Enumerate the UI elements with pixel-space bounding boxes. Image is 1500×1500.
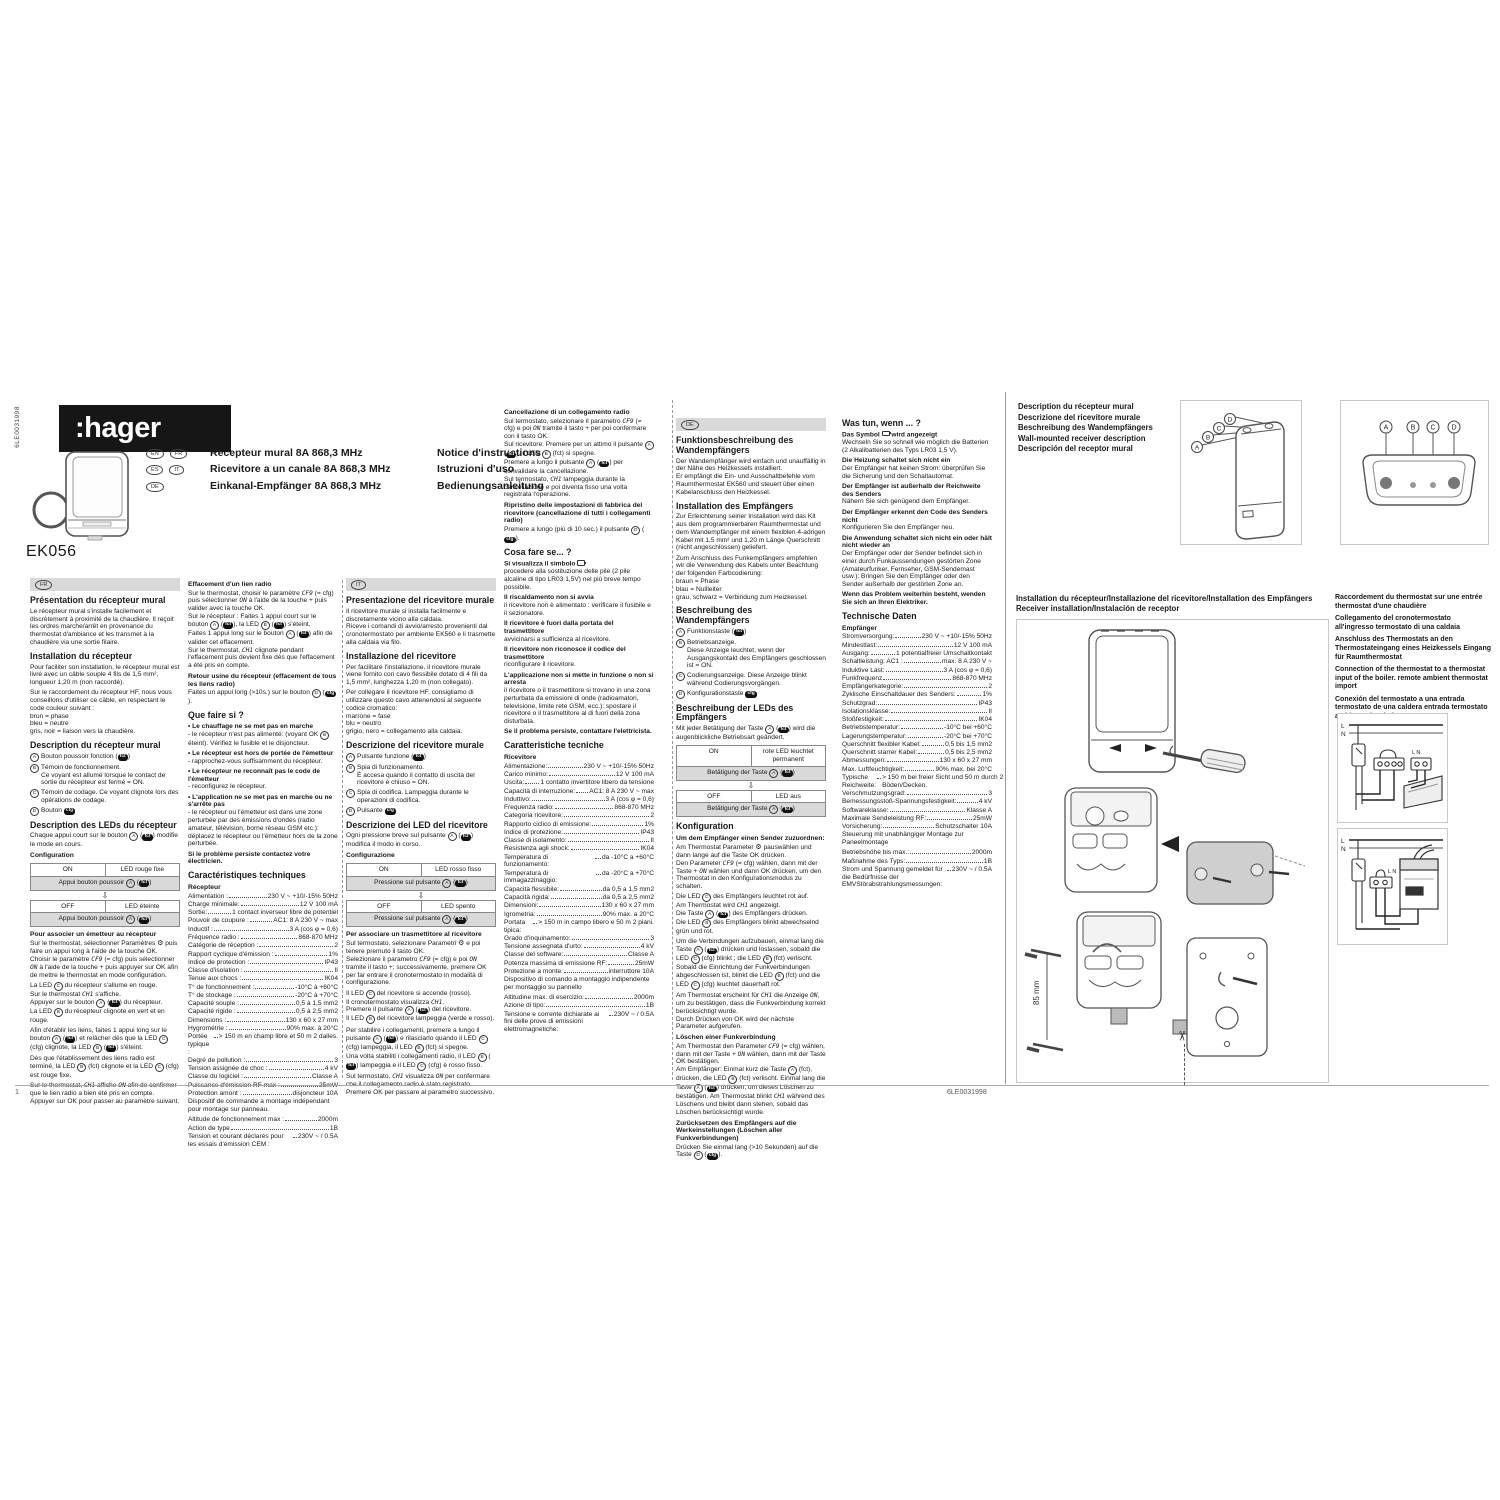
spec-leader <box>904 662 941 663</box>
callout-A-inline: A <box>96 999 105 1008</box>
spec-label: Capacité rigide : <box>188 1008 236 1016</box>
fct-badge: fct <box>734 629 744 636</box>
spec-value: 2 <box>334 942 338 950</box>
spec-leader <box>922 745 944 746</box>
spec-label: Protezione a monte: <box>504 968 563 976</box>
fct-badge: fct <box>413 754 423 761</box>
table-cell-led: LED spento <box>421 901 496 913</box>
callout-B-inline: B <box>93 1044 102 1053</box>
spec-label: Resistenza agli shock: <box>504 845 570 853</box>
note-paragraph: Se il problema persiste, contattare l'el… <box>504 728 654 736</box>
spec-label: Rapport cyclique d'émission : <box>188 951 274 959</box>
spec-leader <box>555 808 614 809</box>
callout-B-inline: B <box>415 1044 424 1053</box>
spec-value: IP43 <box>324 959 338 967</box>
spec-value: 1 contact inverseur libre de potentiel <box>232 909 338 917</box>
language-badge-bar: IT <box>346 578 496 591</box>
spec-value: -20°C à +70°C <box>295 992 338 1000</box>
spec-leader <box>214 930 289 931</box>
spec-value: 1B <box>984 858 992 866</box>
paragraph: Chaque appui court sur le bouton A (fct)… <box>30 832 180 849</box>
spec-label: Isolationsklasse: <box>842 708 890 716</box>
spec-leader <box>285 1120 317 1121</box>
connection-title: Raccordement du thermostat sur une entré… <box>1335 594 1491 612</box>
spec-row: Schaltleistung: AC1 :max. 8 A 230 V ~ <box>842 658 992 666</box>
spec-label: Maßnahme des Typs: <box>842 858 905 866</box>
spec-value: IP43 <box>978 700 992 708</box>
spec-row: Inductif :3 A (cos φ = 0,6) <box>188 926 338 934</box>
faq-question: • L'application ne se met pas en marche … <box>188 794 338 810</box>
line-label: L <box>1341 723 1345 730</box>
spec-leader <box>609 1015 613 1016</box>
spec-leader <box>878 646 953 647</box>
language-badge-it: IT <box>351 580 366 590</box>
language-badge-en: EN <box>146 449 164 459</box>
spec-row: Softwareklasse:Klasse A <box>842 807 992 815</box>
paragraph: Sul termostato, selezionare Parametri ⚙ … <box>346 940 496 987</box>
subsection-heading: Cancellazione di un collegamento radio <box>504 409 654 417</box>
callout-D-inline: D <box>312 689 321 698</box>
spec-leader <box>564 955 627 956</box>
spec-value: 4 kV <box>979 798 992 806</box>
spec-label: Funkfrequenz <box>842 675 882 683</box>
spec-value: -10°C bei +60°C <box>944 724 992 732</box>
faq-item: Die Anwendung schaltet sich nicht ein od… <box>842 535 992 589</box>
spec-label: Indice de protection : <box>188 959 249 967</box>
callout-item-text: Bouton poussoir fonction (fct) <box>41 753 180 762</box>
callout-A-inline: A <box>769 805 778 814</box>
wiring-diagram-boiler: L N L N <box>1338 829 1447 944</box>
spec-row: Stromversorgung:230 V ~ +10/-15% 50Hz <box>842 633 992 641</box>
terminal-label: L N <box>1412 750 1420 756</box>
language-badge-bar: DE <box>676 418 826 431</box>
spec-row: Indice de protection :IP43 <box>188 959 338 967</box>
language-badge-row: ESIT <box>146 462 187 478</box>
language-badge-fr: FR <box>35 580 52 590</box>
callout-B-inline: B <box>763 955 772 964</box>
spec-label: Tensione assegnata d'urto: <box>504 943 583 951</box>
subsection-heading: Um dem Empfänger einen Sender zuzuordnen… <box>676 835 826 843</box>
callout-item: ABouton poussoir fonction (fct) <box>30 753 180 762</box>
spec-leader <box>901 728 943 729</box>
callout-A-inline: A <box>676 628 685 637</box>
spec-label: Schutzgrad: <box>842 700 877 708</box>
spec-leader <box>246 1061 333 1062</box>
paragraph: Per facilitare l'installazione, il ricev… <box>346 664 496 687</box>
paragraph: Per collegare il ricevitore HF, consigli… <box>346 689 496 736</box>
paragraph: Dispositif de commande a montage indépen… <box>188 1098 338 1114</box>
table-cell-led: LED rouge fixe <box>105 864 180 876</box>
table-action-row: Appui bouton poussoir A (fct) <box>30 913 180 927</box>
table-cell-led: LED aus <box>751 791 826 803</box>
callout-item-text: Témoin de codage. Ce voyant clignote lor… <box>41 789 180 805</box>
callout-A-inline: A <box>586 459 595 468</box>
spec-value: 230 V ~ +10/-15% 50Hz <box>268 893 338 901</box>
spec-leader <box>910 853 971 854</box>
spec-label: Capacità rigida: <box>504 894 550 902</box>
spec-row: Induttivo:3 A (cos φ = 0,6) <box>504 796 654 804</box>
fct-badge: fct <box>782 807 792 814</box>
spec-value: > 150 m in campo libero e 50 m 2 piani. <box>538 919 654 927</box>
paragraph: Dispositivo di comando a montaggio indip… <box>504 976 654 992</box>
cfg-badge: cfg <box>707 1153 719 1160</box>
fct-badge: fct <box>274 622 284 629</box>
spec-row: Funkfrequenz868-870 MHz <box>842 675 992 683</box>
callout-B-inline: B <box>77 1063 86 1072</box>
callout-item-text: Témoin de fonctionnement.Ce voyant est a… <box>41 764 180 787</box>
spec-leader <box>240 1004 295 1005</box>
lcd-display-text: ON <box>469 956 477 963</box>
spec-label: Tensione e corrente dichiarate ai fini d… <box>504 1011 608 1034</box>
callout-C-inline: C <box>155 1063 164 1072</box>
spec-label: Grado d'inquinamento: <box>504 935 571 943</box>
spec-value: 2000m <box>318 1116 338 1124</box>
spec-row: Ausgang:1 potentialfreier Umschaltkontak… <box>842 650 992 658</box>
spec-row: Protection amont :disjoncteur 10A <box>188 1090 338 1098</box>
spec-row: Max. Luftfeuchtigkeit:90% max. bei 20°C <box>842 766 992 774</box>
spec-value: 868-870 MHz <box>952 675 992 683</box>
section-heading: Cosa fare se... ? <box>504 548 654 558</box>
callout-B-inline: B <box>30 764 39 773</box>
spec-row: Classe du logiciel :Classe A <box>188 1073 338 1081</box>
lcd-display-text: CF9 <box>302 590 313 597</box>
language-badge-de: DE <box>146 482 164 492</box>
front-view-box: A B C D <box>1180 400 1302 545</box>
lcd-display-text: CH1 <box>761 992 772 999</box>
spec-label: Bemessungsstoß-Spannungsfestigkeit: <box>842 798 956 806</box>
callout-B-inline: B <box>478 1053 487 1062</box>
lcd-display-text: ON <box>436 1073 444 1080</box>
spec-row: Alimentation :230 V ~ +10/-15% 50Hz <box>188 893 338 901</box>
spec-row: Maßnahme des Typs:1B <box>842 858 992 866</box>
led-state-table: ONLED rouge fixeAppui bouton poussoir A … <box>30 863 180 928</box>
faq-question: • Le récepteur ne reconnaît pas le code … <box>188 768 338 784</box>
spec-leader <box>907 794 988 795</box>
fct-badge: fct <box>142 834 152 841</box>
spec-value: Schutzschalter 10A <box>935 823 992 831</box>
connection-title: Connection of the thermostat to a thermo… <box>1335 666 1491 692</box>
spec-row: Altitudine max. di esercizio:2000m <box>504 994 654 1002</box>
spec-label: Catégorie de réception : <box>188 942 258 950</box>
callout-D-inline: D <box>631 526 640 535</box>
faq-answer: Wechseln Sie so schnell wie möglich die … <box>842 439 992 455</box>
language-badge-bar: FR <box>30 578 180 591</box>
description-title: Beschreibung des Wandempfängers <box>1018 423 1188 434</box>
spec-row: Capacità rigida:da 0,5 a 2,5 mm2 <box>504 894 654 902</box>
spec-label: Typische Reichweite: <box>842 774 876 790</box>
fct-badge: fct <box>455 917 465 924</box>
spec-label: Fréquence radio : <box>188 934 240 942</box>
spec-label: Frequenza radio: <box>504 804 554 812</box>
callout-B-inline: B <box>54 1008 63 1017</box>
lcd-display-text: CH1 <box>242 647 253 654</box>
spec-row: T° de fonctionnement :-10°C à +60°C <box>188 984 338 992</box>
callout-B-inline: B <box>676 639 685 648</box>
spec-leader <box>927 819 972 820</box>
fct-badge: fct <box>707 948 717 955</box>
spec-label: Classe du logiciel : <box>188 1073 243 1081</box>
spec-row: Altitude de fonctionnement max :2000m <box>188 1116 338 1124</box>
spec-leader <box>250 963 323 964</box>
parameters-icon: ⚙ <box>458 940 464 947</box>
callout-C-inline: C <box>54 982 63 991</box>
table-cell-led: rote LED leuchtet permanent <box>751 746 826 766</box>
spec-row: Strom und Spannung gemeldet für die Bedü… <box>842 866 992 889</box>
spec-label: Tenue aux chocs : <box>188 975 241 983</box>
callout-B-inline: B <box>261 621 270 630</box>
table-state-row: ONLED rouge fixe <box>30 863 180 877</box>
spec-value: 3 <box>334 1057 338 1065</box>
callout-A-inline: A <box>788 1066 797 1075</box>
wiring-diagram-panel-box: L N L N <box>1337 713 1448 823</box>
wiring-diagram-boiler-box: L N L N <box>1337 828 1448 945</box>
callout-item-text: Pulsante funzione (fct) <box>357 753 496 762</box>
callout-item: CCodierungsanzeige. Diese Anzeige blinkt… <box>676 672 826 688</box>
fct-badge: fct <box>65 1036 75 1043</box>
spec-leader <box>244 1077 311 1078</box>
spec-leader <box>564 816 649 817</box>
spec-row: Empfängerkategorie:2 <box>842 683 992 691</box>
spec-row: Potenza massima di emissione RF:25mW <box>504 960 654 968</box>
spec-label: Classe di isolamento: <box>504 837 567 845</box>
callout-A-inline: A <box>769 769 778 778</box>
spec-leader <box>883 679 951 680</box>
callout-C-inline: C <box>366 990 375 999</box>
spec-row: Temperatura di immagazzinaggio:da -20°C … <box>504 870 654 886</box>
spec-leader <box>878 704 977 705</box>
faq-question: Der Empfänger erkennt den Code des Sende… <box>842 509 992 525</box>
spec-leader <box>551 898 602 899</box>
spec-label: Classe del software: <box>504 951 563 959</box>
spec-row: Grado d'inquinamento:3 <box>504 935 654 943</box>
spec-row: Mindestlast:12 V 100 mA <box>842 642 992 650</box>
callout-A-inline: A <box>126 879 135 888</box>
section-heading: Présentation du récepteur mural <box>30 596 180 606</box>
fct-badge: fct <box>418 1008 428 1015</box>
spec-leader <box>241 938 298 939</box>
spec-label: Altitude de fonctionnement max : <box>188 1116 284 1124</box>
spec-value: 3 <box>650 935 654 943</box>
spec-label: Altitudine max. di esercizio: <box>504 994 584 1002</box>
spec-row: Maximale Sendeleistung RF:25mW <box>842 815 992 823</box>
lcd-display-text: ON <box>699 868 707 875</box>
table-state-row: OFFLED spento <box>346 900 496 914</box>
spec-row: Portata tipica:> 150 m in campo libero e… <box>504 919 654 935</box>
spec-value: 0,5 à 2,5 mm2 <box>296 1008 338 1016</box>
spec-value: > 150 m bei freier Sicht und 50 m durch … <box>882 774 1032 790</box>
spec-row: Pouvoir de coupure :AC1: 8 A 230 V ~ max <box>188 917 338 925</box>
battery-icon <box>577 560 585 566</box>
spec-value: 2 <box>988 683 992 691</box>
spec-label: Rapporto ciclico di emissione: <box>504 821 591 829</box>
note-paragraph: Wenn das Problem weiterhin besteht, wend… <box>842 591 992 607</box>
subsection-heading: Per associare un trasmettitore al ricevi… <box>346 931 496 939</box>
language-badge-it: IT <box>169 465 184 475</box>
spec-label: Igrometria: <box>504 911 536 919</box>
callout-D: D <box>1228 416 1233 423</box>
product-code: EK056 <box>26 543 77 561</box>
spec-label: Capacità flessibile: <box>504 886 559 894</box>
spec-row: Degré de pollution :3 <box>188 1057 338 1065</box>
column-german-1: DEFunktionsbeschreibung des Wandempfänge… <box>676 418 826 1163</box>
spec-leader <box>241 905 299 906</box>
section-heading: Presentazione del ricevitore murale <box>346 596 496 606</box>
parameters-icon: ⚙ <box>755 844 761 851</box>
spec-leader <box>886 671 943 672</box>
spec-row: Tensione e corrente dichiarate ai fini d… <box>504 1011 654 1034</box>
callout-B-inline: B <box>728 1075 737 1084</box>
spec-value: 1 potentialfreier Umschaltkontakt <box>896 650 992 658</box>
section-heading: Caractéristiques techniques <box>188 871 338 881</box>
spec-label: Pouvoir de coupure : <box>188 917 249 925</box>
spec-value: 0,5 bis 1,5 mm2 <box>945 741 992 749</box>
paragraph: Die LED C des Empfängers leuchtet rot au… <box>676 893 826 936</box>
spec-leader <box>546 1006 645 1007</box>
lcd-display-text: CH1 <box>392 1073 403 1080</box>
spec-leader <box>877 778 881 779</box>
spec-value: 4 kV <box>641 943 654 951</box>
spec-leader <box>208 913 231 914</box>
faq-item: • Le récepteur ne reconnaît pas le code … <box>188 768 338 791</box>
callout-A-inline: A <box>210 621 219 630</box>
spec-leader <box>596 874 601 875</box>
spec-label: Betriebshöhe bis max.: <box>842 849 909 857</box>
spec-leader <box>906 862 983 863</box>
spec-row: Sortie:1 contact inverseur libre de pote… <box>188 909 338 917</box>
lcd-display-text: CH1 <box>550 476 561 483</box>
description-title: Wall-mounted receiver description <box>1018 434 1188 445</box>
spec-row: Classe d'isolation :II <box>188 967 338 975</box>
spec-label: Ausgang: <box>842 650 870 658</box>
section-heading: Caratteristiche tecniche <box>504 741 654 751</box>
column-french-2: Effacement d'un lien radioSur le thermos… <box>188 578 338 1149</box>
faq-answer: Nähern Sie sich genügend dem Empfänger. <box>842 498 992 506</box>
spec-label: Temperatura di immagazzinaggio: <box>504 870 595 886</box>
callout-C-inline: C <box>676 672 685 681</box>
spec-leader <box>568 841 650 842</box>
spec-row: Temperatura di funzionamento:da -10°C a … <box>504 854 654 870</box>
paragraph: Steuerung mit unabhängiger Montage zur P… <box>842 831 992 847</box>
subsection-heading: Configuration <box>30 852 180 860</box>
lcd-display-text: ON <box>239 597 247 604</box>
spec-leader <box>895 637 920 638</box>
language-badge-rows: ENFRESITDE <box>146 446 187 495</box>
paragraph: Il ricevitore murale si installa facilme… <box>346 608 496 647</box>
faq-question: • Le récepteur est hors de portée de l'é… <box>188 750 338 758</box>
faq-question: Il ricevitore non riconosce il codice de… <box>504 646 654 662</box>
spec-value: IK04 <box>324 975 338 983</box>
spec-label: Capacità di interruzione: <box>504 788 575 796</box>
spec-label: Mindestlast: <box>842 642 877 650</box>
subsection-heading: Ripristino delle impostazioni di fabbric… <box>504 502 654 525</box>
spec-leader <box>269 1069 324 1070</box>
fct-badge: fct <box>455 880 465 887</box>
spec-leader <box>548 767 582 768</box>
spec-row: Capacità flessibile:da 0,5 a 1,5 mm2 <box>504 886 654 894</box>
spec-label: Charge minimale: <box>188 901 240 909</box>
spec-row: Isolationsklasse:II <box>842 708 992 716</box>
spec-row: Induktive Last:3 A (cos φ = 0,6) <box>842 667 992 675</box>
section-heading: Description des LEDs du récepteur <box>30 821 180 831</box>
spec-leader <box>564 972 608 973</box>
spec-row: Resistenza agli shock:IK04 <box>504 845 654 853</box>
callout-D-inline: D <box>30 807 39 816</box>
hager-logo: :hager <box>59 405 231 452</box>
page-number: 1 <box>15 1089 19 1096</box>
subsection-heading: Löschen einer Funkverbindung <box>676 1034 826 1042</box>
connection-titles: Raccordement du thermostat sur une entré… <box>1335 594 1491 725</box>
spec-label: Stromversorgung: <box>842 633 894 641</box>
spec-leader <box>560 890 602 891</box>
faq-answer: - rapprochez-vous suffisamment du récept… <box>188 758 338 766</box>
spec-label: Action de type <box>188 1125 230 1133</box>
callout-A-inline: A <box>52 1035 61 1044</box>
spec-value: 0,5 à 1,5 mm2 <box>296 1000 338 1008</box>
spec-row: Classe di isolamento:II <box>504 837 654 845</box>
cfg-badge: cfg <box>385 808 397 815</box>
spec-value: 90% max. a 20°C <box>603 911 654 919</box>
callout-A-inline: A <box>286 630 295 639</box>
spec-label: Querschnitt flexibler Kabel: <box>842 741 921 749</box>
spec-label: Uscita: <box>504 779 524 787</box>
spec-row: Rapport cyclique d'émission :1% <box>188 951 338 959</box>
spec-row: Stoßfestigkeit:IK04 <box>842 716 992 724</box>
text-diagram-separator <box>1005 392 1006 1084</box>
spec-leader <box>918 753 944 754</box>
callout-A-inline: A <box>645 441 654 450</box>
spec-value: 90% max. à 20°C <box>287 1025 338 1033</box>
spec-value: 130 x 60 x 27 mm <box>286 1017 338 1025</box>
callout-B-inline: B <box>320 731 329 740</box>
fct-badge: fct <box>109 1000 119 1007</box>
spec-row: Tension et courant déclarés pour les ess… <box>188 1133 338 1149</box>
faq-answer: - le récepteur n'est pas alimenté: (voya… <box>188 731 338 748</box>
spec-row: Categoria ricevitore:2 <box>504 812 654 820</box>
callout-A-inline: A <box>405 1006 414 1015</box>
spec-value: 25mW <box>973 815 992 823</box>
table-state-row: OFFLED éteinte <box>30 900 180 914</box>
installation-step-illustrations: 85 mm <box>1017 620 1328 1082</box>
callout-A-inline: A <box>346 753 355 762</box>
faq-item: Der Empfänger ist außerhalb der Reichwei… <box>842 483 992 506</box>
spec-leader <box>908 737 943 738</box>
spec-value: 1% <box>982 691 992 699</box>
spec-value: disjoncteur 10A <box>293 1090 338 1098</box>
paragraph: Zum Anschluss des Funkempfängers empfehl… <box>676 555 826 602</box>
spec-value: II <box>988 708 992 716</box>
spec-value: 1% <box>644 821 654 829</box>
spec-label: Alimentation : <box>188 893 228 901</box>
spec-row: Catégorie de réception :2 <box>188 942 338 950</box>
spec-leader <box>293 1137 297 1138</box>
table-arrow: ⇩ <box>30 891 180 900</box>
spec-value: 2 <box>650 812 654 820</box>
callout-D-inline: D <box>346 807 355 816</box>
spec-leader <box>237 996 294 997</box>
table-state-row: ONLED rosso fisso <box>346 863 496 877</box>
faq-answer: - reconfigurez le récepteur. <box>188 783 338 791</box>
spec-row: Typische Reichweite:> 150 m bei freier S… <box>842 774 992 790</box>
spec-value: 868-870 MHz <box>298 934 338 942</box>
spec-value: 12 V 100 mA <box>954 642 992 650</box>
spec-label: Stoßfestigkeit: <box>842 716 884 724</box>
spec-value: 868-870 MHz <box>614 804 654 812</box>
spec-row: Carico minimo:12 V 100 mA <box>504 771 654 779</box>
spec-value: da 0,5 a 2,5 mm2 <box>603 894 654 902</box>
spec-value: AC1: 8 A 230 V ~ max <box>589 788 654 796</box>
callout-A-inline: A <box>442 879 451 888</box>
spec-value: 0,5 bis 2,5 mm2 <box>945 749 992 757</box>
